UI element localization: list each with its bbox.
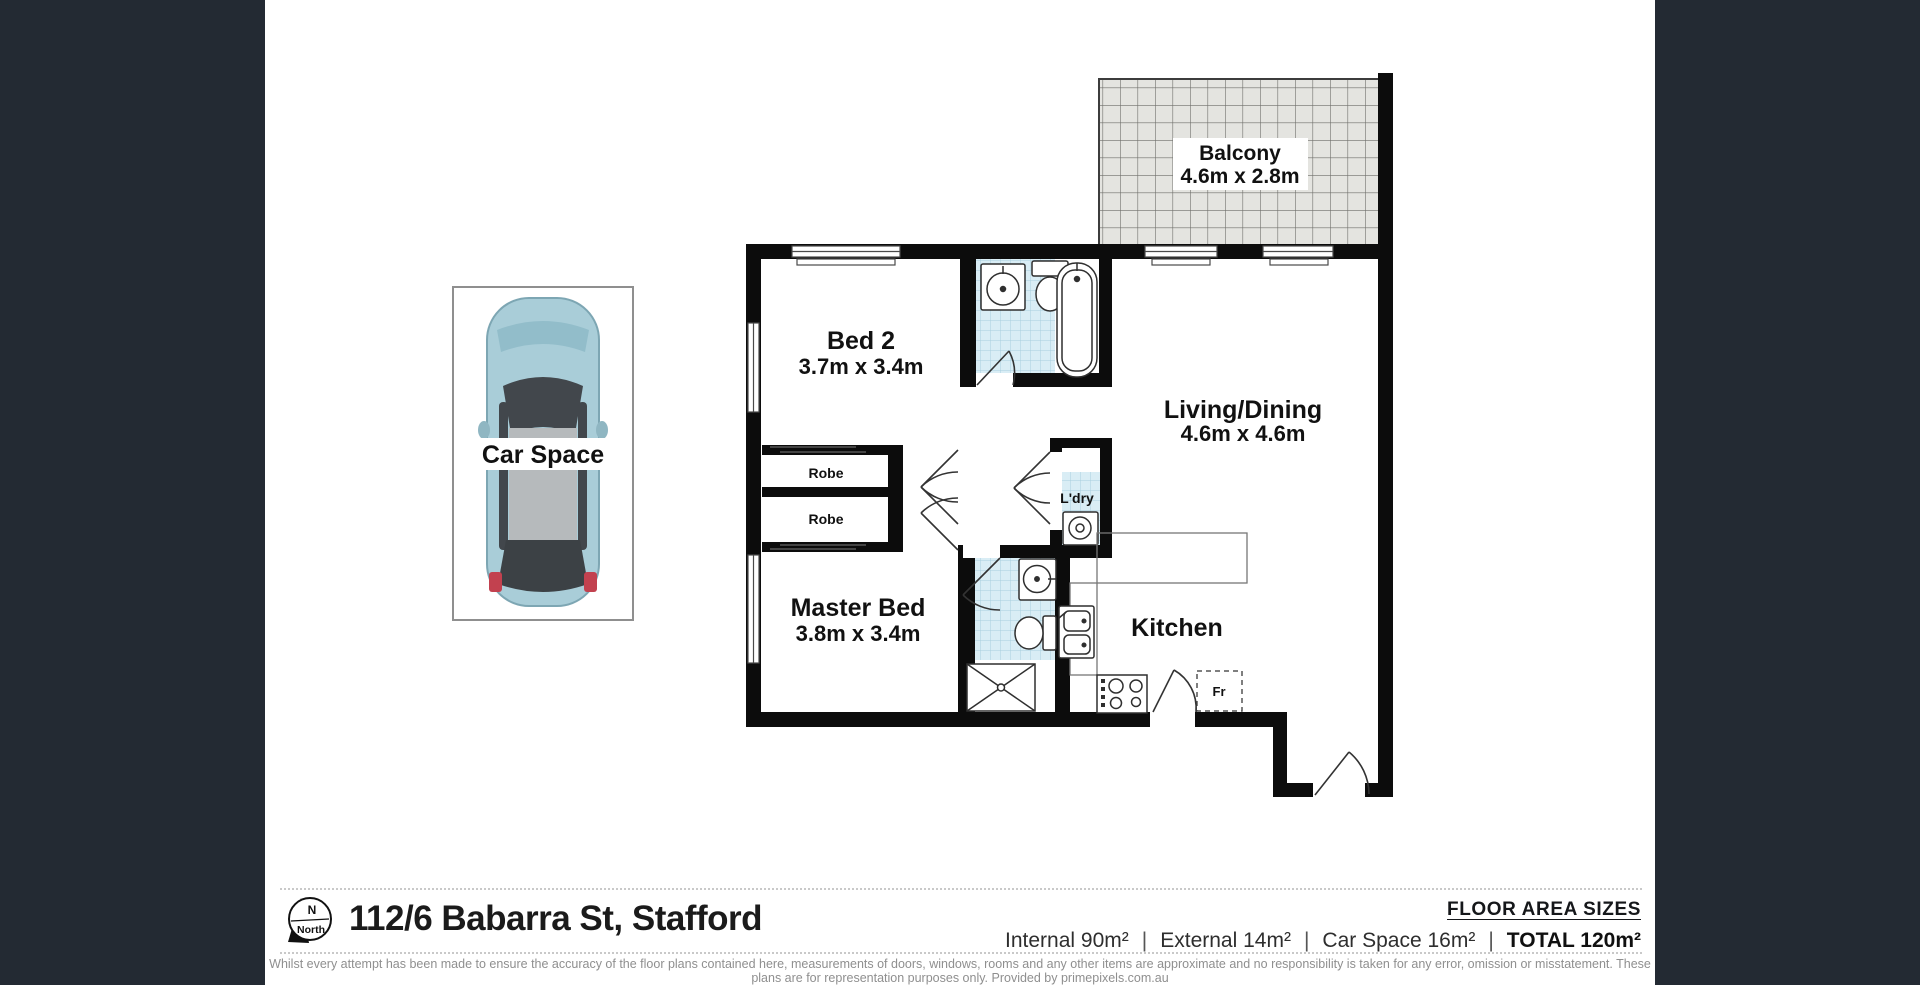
ensuite-door-gap [963, 545, 1000, 558]
kitchen-counters [1070, 533, 1247, 675]
master-dims: 3.8m x 3.4m [796, 621, 921, 646]
left-dark-panel [0, 0, 265, 985]
laundry-label: L'dry [1060, 490, 1094, 506]
compass-word: North [297, 924, 325, 936]
area-separator: | [1142, 929, 1147, 952]
right-dark-panel [1655, 0, 1920, 985]
shower-icon [967, 664, 1035, 711]
master-label: Master Bed [791, 594, 926, 622]
car-space-label: Car Space [482, 441, 604, 469]
area-total: TOTAL 120m² [1507, 929, 1641, 952]
area-external: External 14m² [1160, 929, 1291, 952]
area-internal: Internal 90m² [1005, 929, 1129, 952]
floorplan-page: Car Space Balcony 4.6m x 2.8m [0, 0, 1920, 985]
kitchen-label: Kitchen [1131, 614, 1223, 642]
floor-areas-block: FLOOR AREA SIZES Internal 90m²|External … [1005, 899, 1641, 953]
balcony: Balcony 4.6m x 2.8m [1099, 79, 1380, 247]
car-space-box: Car Space [453, 287, 633, 620]
area-car-space: Car Space 16m² [1322, 929, 1475, 952]
floor-plan-svg: Car Space Balcony 4.6m x 2.8m [265, 0, 1655, 985]
stove-icon [1097, 675, 1147, 713]
fridge-box: Fr [1197, 671, 1242, 711]
bed2-dims: 3.7m x 3.4m [799, 354, 924, 379]
ensuite-toilet-icon [1015, 616, 1056, 650]
bathtub-icon [1057, 263, 1097, 377]
robe-bottom-label: Robe [809, 511, 844, 527]
living-label: Living/Dining [1164, 396, 1322, 424]
footer-top-divider [280, 888, 1642, 890]
ensuite-sink-icon [1019, 559, 1056, 600]
bed2-label: Bed 2 [827, 327, 895, 355]
north-compass-icon: N North [285, 895, 333, 945]
compass-n: N [308, 903, 317, 917]
robe-sliding-doors [770, 447, 866, 549]
area-separator: | [1304, 929, 1309, 952]
robe-top-label: Robe [809, 465, 844, 481]
disclaimer-divider [280, 952, 1642, 954]
floor-areas-line: Internal 90m²|External 14m²|Car Space 16… [1005, 929, 1641, 953]
kitchen-sink-icon [1059, 606, 1094, 658]
balcony-label: Balcony [1199, 142, 1281, 165]
plan-paper: Car Space Balcony 4.6m x 2.8m [265, 0, 1655, 985]
property-address: 112/6 Babarra St, Stafford [349, 899, 762, 939]
laundry-washer-icon [1063, 512, 1098, 545]
living-dims: 4.6m x 4.6m [1181, 421, 1306, 446]
balcony-dims: 4.6m x 2.8m [1180, 165, 1299, 188]
area-separator: | [1488, 929, 1493, 952]
disclaimer-text: Whilst every attempt has been made to en… [265, 957, 1655, 985]
floor-area-sizes-title: FLOOR AREA SIZES [1447, 899, 1641, 921]
bath-sink-icon [981, 264, 1025, 310]
fridge-label: Fr [1213, 684, 1226, 699]
